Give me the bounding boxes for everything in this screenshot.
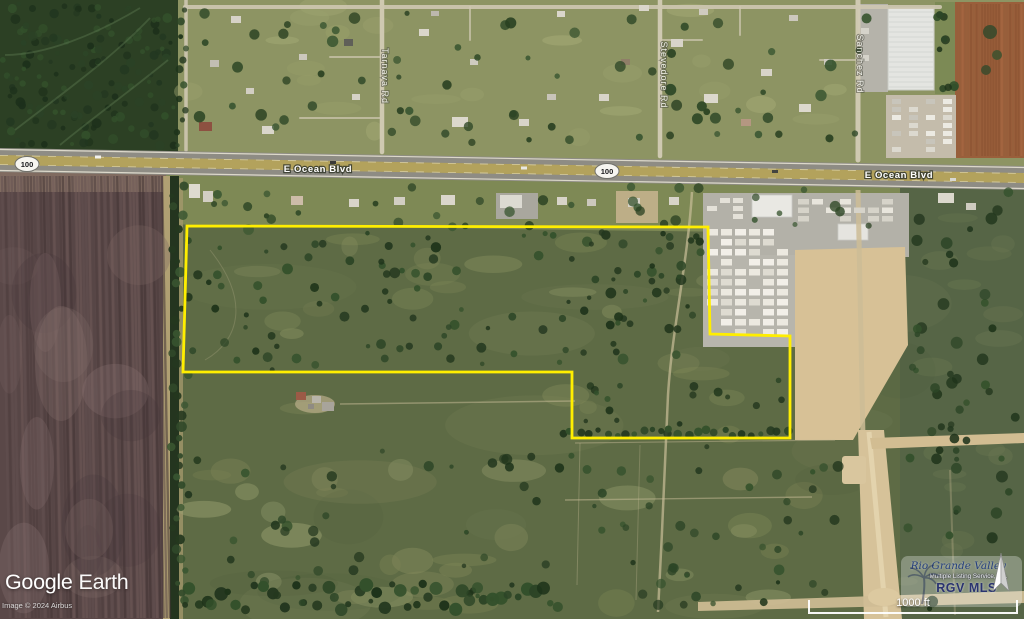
logo-earth: Earth xyxy=(79,570,129,594)
street-label-sanchez-rd: Sanchez Rd xyxy=(855,34,865,93)
satellite-map-canvas[interactable]: 100 100 E Ocean Blvd E Ocean Blvd Tarnav… xyxy=(0,0,1024,619)
logo-google: Google xyxy=(5,570,73,594)
scale-bar: 1000 ft xyxy=(808,600,1018,614)
google-earth-viewport: 100 100 E Ocean Blvd E Ocean Blvd Tarnav… xyxy=(0,0,1024,619)
route-shield-number: 100 xyxy=(601,167,614,176)
imagery-copyright: Image © 2024 Airbus xyxy=(2,601,72,610)
google-earth-logo: GoogleEarth xyxy=(5,570,128,595)
scale-bar-label: 1000 ft xyxy=(810,597,1016,609)
route-shield-100-west: 100 xyxy=(15,157,39,172)
route-shield-100-east: 100 xyxy=(595,164,619,179)
street-label-tarnava-rd: Tarnava Rd xyxy=(380,48,390,104)
road-label-e-ocean-blvd-west: E Ocean Blvd xyxy=(284,164,352,175)
route-shield-number: 100 xyxy=(21,160,34,169)
plowed-field-rows xyxy=(0,176,171,618)
road-label-e-ocean-blvd-east: E Ocean Blvd xyxy=(865,170,933,181)
north-arrow-icon xyxy=(986,550,1016,596)
street-label-stevedore-rd: Stevedore Rd xyxy=(659,41,669,108)
